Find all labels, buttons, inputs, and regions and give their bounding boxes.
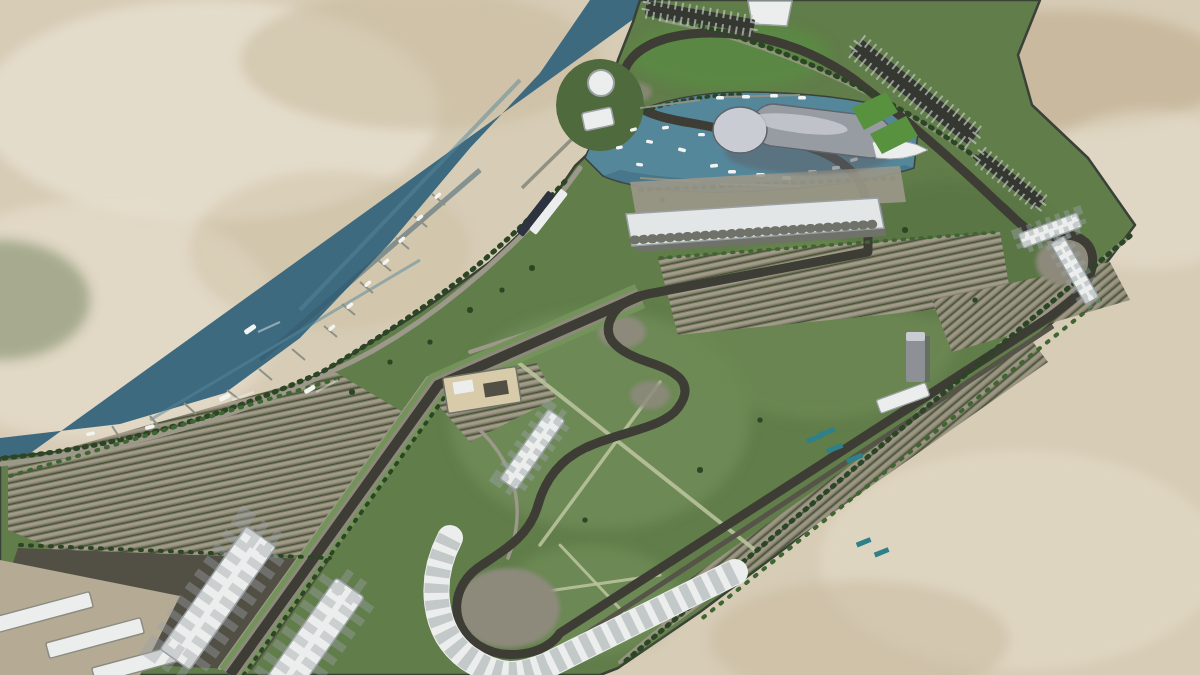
circuit-scene bbox=[0, 0, 1200, 675]
support-tower bbox=[906, 332, 930, 382]
aerial-render-canvas bbox=[0, 0, 1200, 675]
hotel-head bbox=[713, 107, 767, 153]
peninsula-round-building bbox=[588, 70, 614, 96]
